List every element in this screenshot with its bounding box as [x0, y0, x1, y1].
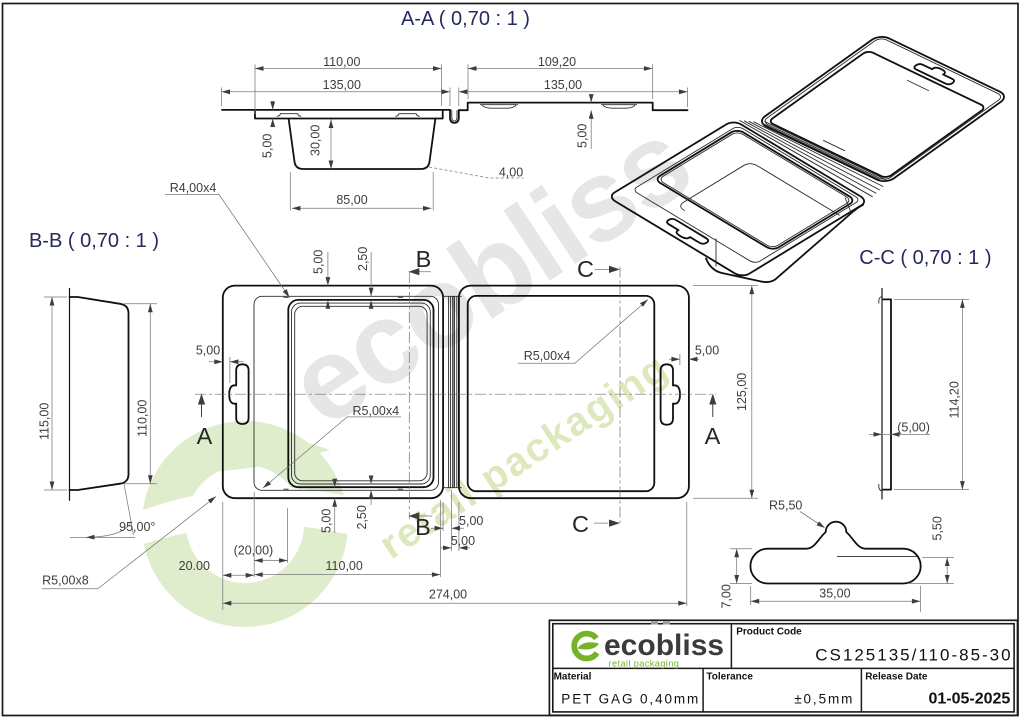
- svg-text:Release Date: Release Date: [865, 672, 928, 683]
- svg-text:CS125135/110-85-30: CS125135/110-85-30: [815, 646, 1012, 665]
- svg-text:C: C: [577, 256, 594, 282]
- svg-text:274,00: 274,00: [429, 588, 467, 602]
- svg-text:95,00°: 95,00°: [119, 520, 155, 534]
- svg-text:ecobliss: ecobliss: [604, 629, 724, 662]
- svg-text:R5,00x4: R5,00x4: [524, 349, 571, 363]
- svg-text:PET GAG 0,40mm: PET GAG 0,40mm: [561, 692, 700, 707]
- svg-text:5,50: 5,50: [931, 516, 945, 540]
- svg-text:5,00: 5,00: [196, 344, 220, 358]
- svg-text:20.00: 20.00: [179, 559, 210, 573]
- svg-text:C-C ( 0,70 : 1 ): C-C ( 0,70 : 1 ): [859, 247, 991, 269]
- svg-text:5,00: 5,00: [312, 250, 326, 274]
- svg-text:R4,00x4: R4,00x4: [170, 181, 217, 195]
- svg-text:30,00: 30,00: [309, 125, 323, 156]
- svg-text:7,00: 7,00: [720, 584, 734, 608]
- svg-text:135,00: 135,00: [544, 78, 582, 92]
- svg-text:115,00: 115,00: [38, 403, 52, 440]
- svg-text:2,50: 2,50: [355, 505, 369, 529]
- svg-text:(20,00): (20,00): [234, 544, 274, 558]
- svg-text:Material: Material: [554, 672, 592, 683]
- svg-text:5,00: 5,00: [459, 514, 483, 528]
- svg-text:110,00: 110,00: [326, 559, 363, 573]
- svg-text:01-05-2025: 01-05-2025: [928, 691, 1010, 708]
- svg-text:109,20: 109,20: [538, 55, 576, 69]
- svg-text:Product Code: Product Code: [736, 627, 802, 638]
- svg-text:retail packaging: retail packaging: [609, 659, 680, 669]
- svg-text:114,20: 114,20: [948, 381, 962, 418]
- svg-text:A: A: [197, 423, 213, 449]
- svg-text:±0,5mm: ±0,5mm: [794, 692, 854, 707]
- svg-text:R5,00x4: R5,00x4: [353, 404, 400, 418]
- svg-text:5,00: 5,00: [695, 344, 719, 358]
- svg-text:A: A: [705, 423, 721, 449]
- svg-text:4,00: 4,00: [499, 166, 523, 180]
- svg-text:135,00: 135,00: [323, 78, 361, 92]
- svg-text:2,50: 2,50: [356, 247, 370, 271]
- svg-text:5,00: 5,00: [261, 134, 275, 158]
- svg-text:B: B: [416, 246, 432, 272]
- svg-text:125,00: 125,00: [735, 373, 749, 411]
- svg-text:85,00: 85,00: [336, 193, 367, 207]
- svg-text:110,00: 110,00: [323, 55, 360, 69]
- svg-text:Tolerance: Tolerance: [706, 672, 753, 683]
- svg-text:C: C: [572, 511, 589, 537]
- svg-text:5,00: 5,00: [576, 124, 590, 148]
- svg-text:A-A ( 0,70 : 1 ): A-A ( 0,70 : 1 ): [401, 8, 530, 30]
- svg-text:(5,00): (5,00): [897, 421, 930, 435]
- svg-text:5,00: 5,00: [451, 534, 475, 548]
- svg-text:B-B ( 0,70 : 1 ): B-B ( 0,70 : 1 ): [29, 230, 159, 252]
- svg-text:110,00: 110,00: [136, 400, 150, 437]
- svg-text:35,00: 35,00: [819, 587, 850, 601]
- svg-text:R5,50: R5,50: [769, 499, 802, 513]
- svg-text:R5,00x8: R5,00x8: [42, 574, 89, 588]
- svg-text:5,00: 5,00: [320, 509, 334, 533]
